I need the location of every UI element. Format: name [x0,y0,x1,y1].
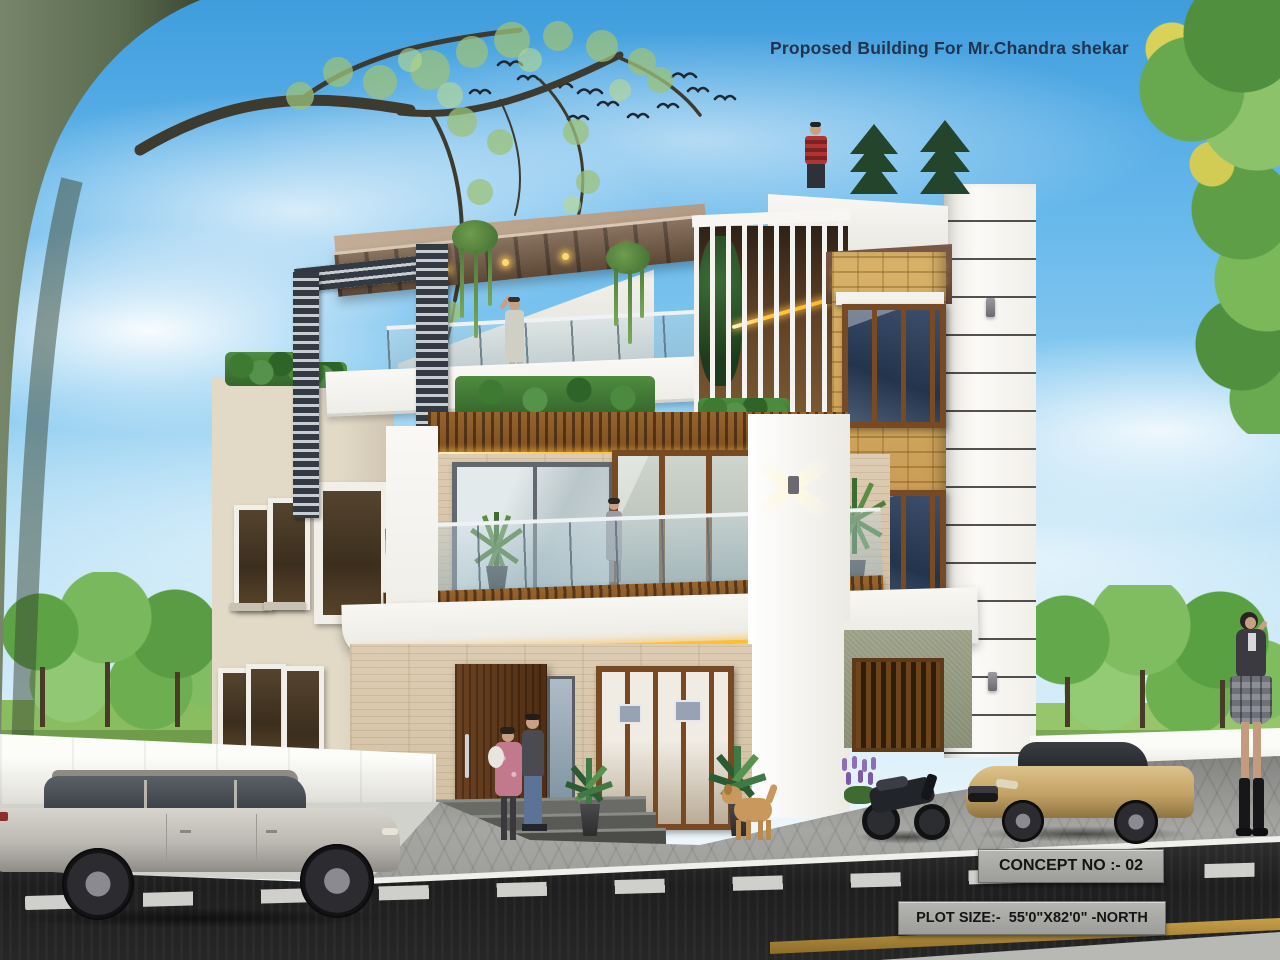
window-sill [230,603,268,611]
window-sill [264,602,306,610]
plot-size-label: PLOT SIZE:- 55'0"X82'0" -NORTH [916,910,1148,926]
hanging-plant [452,220,500,338]
render-title: Proposed Building For Mr.Chandra shekar [770,38,1130,59]
concept-number-label: CONCEPT NO :- 02 [999,857,1143,875]
hanging-plant [606,242,652,346]
plot-size-box: PLOT SIZE:- 55'0"X82'0" -NORTH [898,901,1166,935]
concept-number-box: CONCEPT NO :- 02 [978,849,1164,883]
conifer-tree [920,120,970,194]
x-wall-sconce-icon [762,436,838,556]
motorcycle [856,756,956,848]
roof-man [798,124,834,190]
wall-lamp-icon [986,298,995,317]
entrance-woman-with-baby [490,730,524,846]
wall-lamp-icon [988,672,997,691]
silver-car [0,768,406,938]
architectural-render: Proposed Building For Mr.Chandra shekar … [0,0,1280,960]
stone-wall-window-upper [842,304,946,428]
left-wing-window [234,505,272,611]
balcony-hedge [455,376,655,416]
vertical-louvers [694,218,848,420]
conifer-tree [850,124,898,194]
pergola-frame-post [293,272,319,518]
potted-plant [566,744,612,840]
slatted-window [852,658,944,752]
dog [722,776,780,842]
pedestrian-woman [1222,612,1280,856]
left-wing-window [314,482,390,624]
gold-car [966,742,1198,844]
